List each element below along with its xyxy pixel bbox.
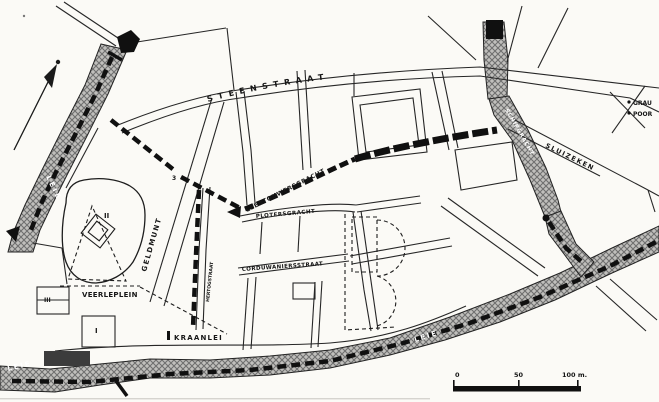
dark-building-block [44, 351, 90, 366]
street-label-leertouwersgracht: LEERTOUWERSGRACHT [245, 167, 327, 213]
bridge-plug-north [117, 30, 140, 53]
street-label-geldmunt: GELDMUNT [140, 216, 163, 272]
schipgracht-band [489, 96, 561, 217]
square-label-veerleplein: VEERLEPLEIN [82, 291, 138, 299]
gate-label-grauwpoort-1: GRAU [633, 100, 652, 107]
gate-label-grauwpoort-2: POOR [633, 111, 653, 118]
map-canvas: STEENSTRAAT LEERTOUWERSGRACHT PLOTERSGRA… [0, 0, 659, 402]
kraanlei-gate-tick [167, 331, 170, 340]
north-arrow [14, 15, 60, 150]
schipgracht-band-lower [545, 211, 594, 277]
scale-bar-notch-100 [577, 380, 579, 386]
grauwpoort-bullet-2 [627, 111, 630, 114]
street-label-kraanlei: KRAANLEI [174, 334, 223, 342]
gate-dot-east [543, 215, 550, 222]
scale-bar-notch-0 [453, 380, 455, 386]
leie-band-bottom [0, 226, 659, 392]
site-numeral-ii: II [104, 212, 109, 220]
scale-tick-0: 0 [455, 371, 460, 379]
bridge-plug-northeast [486, 20, 503, 39]
scan-artifact-line [0, 398, 430, 399]
scale-bar: 0 50 100 m. [453, 371, 587, 392]
scale-bar-rule [453, 386, 581, 392]
street-label-sluizeken: SLUIZEKEN [544, 142, 596, 173]
street-label-corduwaniersstraat: CORDUWANIERSSTRAAT [242, 261, 324, 273]
street-label-plotersgracht: PLOTERSGRACHT [256, 209, 316, 220]
grauwpoort-bullet-1 [627, 100, 630, 103]
gate-number-3: 3 [172, 175, 176, 182]
dashed-former-structures [60, 206, 405, 334]
site-numeral-iii: III [44, 297, 51, 304]
rampart-arrowhead-centre [227, 206, 241, 218]
site-numeral-i: I [95, 327, 98, 335]
historic-city-map: STEENSTRAAT LEERTOUWERSGRACHT PLOTERSGRA… [0, 0, 659, 402]
scale-bar-notch-50 [518, 380, 520, 386]
north-arrow-head [44, 64, 57, 88]
scale-tick-100: 100 m. [562, 371, 587, 379]
street-label-hertogstraat: HERTOGSTRAAT [205, 261, 215, 302]
scale-tick-50: 50 [514, 371, 524, 379]
